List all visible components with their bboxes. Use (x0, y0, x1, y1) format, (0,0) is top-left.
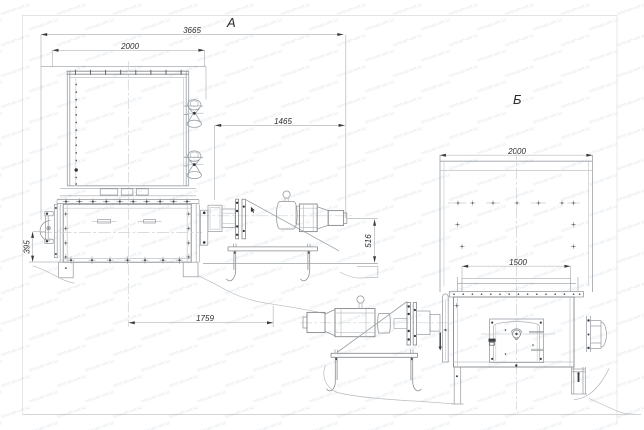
svg-text:А: А (226, 15, 236, 30)
svg-text:1759: 1759 (196, 314, 214, 323)
svg-text:516: 516 (364, 234, 373, 248)
svg-text:3665: 3665 (183, 26, 201, 35)
svg-text:Б: Б (513, 92, 522, 107)
svg-text:1465: 1465 (274, 117, 292, 126)
svg-text:1500: 1500 (509, 258, 527, 267)
svg-text:2000: 2000 (120, 42, 139, 51)
svg-text:395: 395 (22, 240, 31, 254)
